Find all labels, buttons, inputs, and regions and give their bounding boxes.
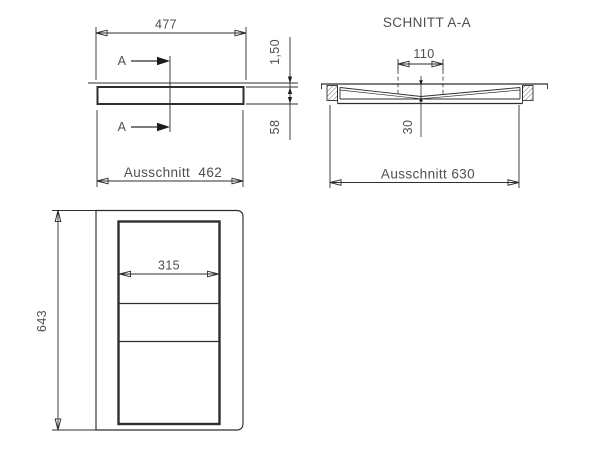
side-view: 477 A A 1,50 58 Ausschnitt 462: [88, 18, 298, 188]
tray-slope-right-under: [421, 90, 520, 99]
section-arrow-icon: [157, 123, 170, 131]
plan-inner-opening: [119, 222, 220, 425]
tray-slope-left: [340, 88, 421, 97]
cutout-630-label: Ausschnitt 630: [381, 167, 475, 182]
section-label-a-bottom: A: [118, 120, 127, 134]
section-label-a-top: A: [118, 54, 127, 68]
plan-view: 643 315: [35, 211, 243, 431]
dim-643-label: 643: [35, 310, 49, 332]
section-view-title: SCHNITT A-A: [383, 15, 471, 30]
arrowhead: [288, 77, 292, 84]
arrowhead: [288, 97, 292, 104]
cutout-462-label: Ausschnitt 462: [124, 165, 222, 180]
hatch-section-right: [523, 86, 534, 101]
dim-30-label: 30: [401, 120, 415, 135]
technical-drawing-sheet: 477 A A 1,50 58 Ausschnitt 462 SCHNITT A…: [0, 0, 600, 467]
dim-110-label: 110: [413, 47, 434, 61]
side-view-body: [98, 87, 244, 104]
dim-58-label: 58: [268, 120, 282, 135]
drawing-canvas: 477 A A 1,50 58 Ausschnitt 462 SCHNITT A…: [0, 0, 600, 467]
dim-477-label: 477: [155, 18, 177, 32]
arrowhead: [288, 87, 292, 94]
dim-315-label: 315: [158, 259, 180, 273]
tray-slope-right: [421, 88, 520, 97]
dim-1-50-label: 1,50: [268, 39, 282, 65]
tray-slope-left-under: [340, 90, 421, 99]
hatch-section-left: [327, 86, 338, 101]
section-arrow-icon: [157, 57, 170, 65]
section-view: SCHNITT A-A 110 30 Aus: [321, 15, 548, 188]
